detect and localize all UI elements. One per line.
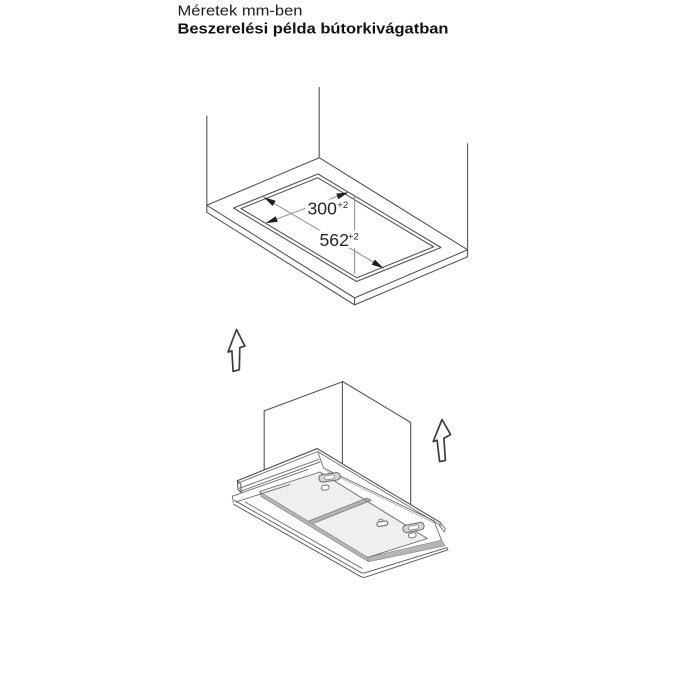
svg-text:+2: +2 — [337, 200, 348, 211]
svg-text:+2: +2 — [348, 232, 359, 243]
svg-text:300: 300 — [308, 198, 338, 218]
svg-text:Beszerelési példa bútorkivágat: Beszerelési példa bútorkivágatban — [178, 21, 449, 38]
svg-text:Méretek mm-ben: Méretek mm-ben — [178, 3, 303, 19]
svg-text:562: 562 — [320, 230, 349, 250]
